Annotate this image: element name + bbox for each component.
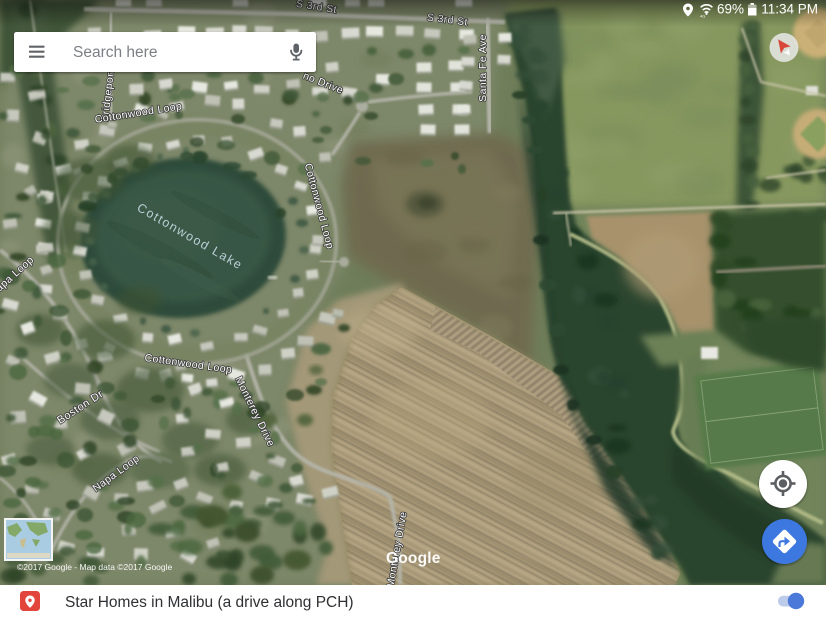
svg-text:69%: 69%: [717, 2, 744, 17]
svg-text:Search here: Search here: [73, 44, 157, 61]
svg-text:©2017 Google - Map data ©2017: ©2017 Google - Map data ©2017 Google: [17, 562, 173, 572]
svg-text:11:34 PM: 11:34 PM: [761, 2, 818, 17]
svg-text:Santa Fe Ave: Santa Fe Ave: [477, 34, 489, 102]
svg-text:Google: Google: [386, 550, 441, 567]
svg-text:4G: 4G: [700, 14, 705, 19]
svg-text:Star Homes in Malibu (a drive: Star Homes in Malibu (a drive along PCH): [65, 594, 354, 611]
